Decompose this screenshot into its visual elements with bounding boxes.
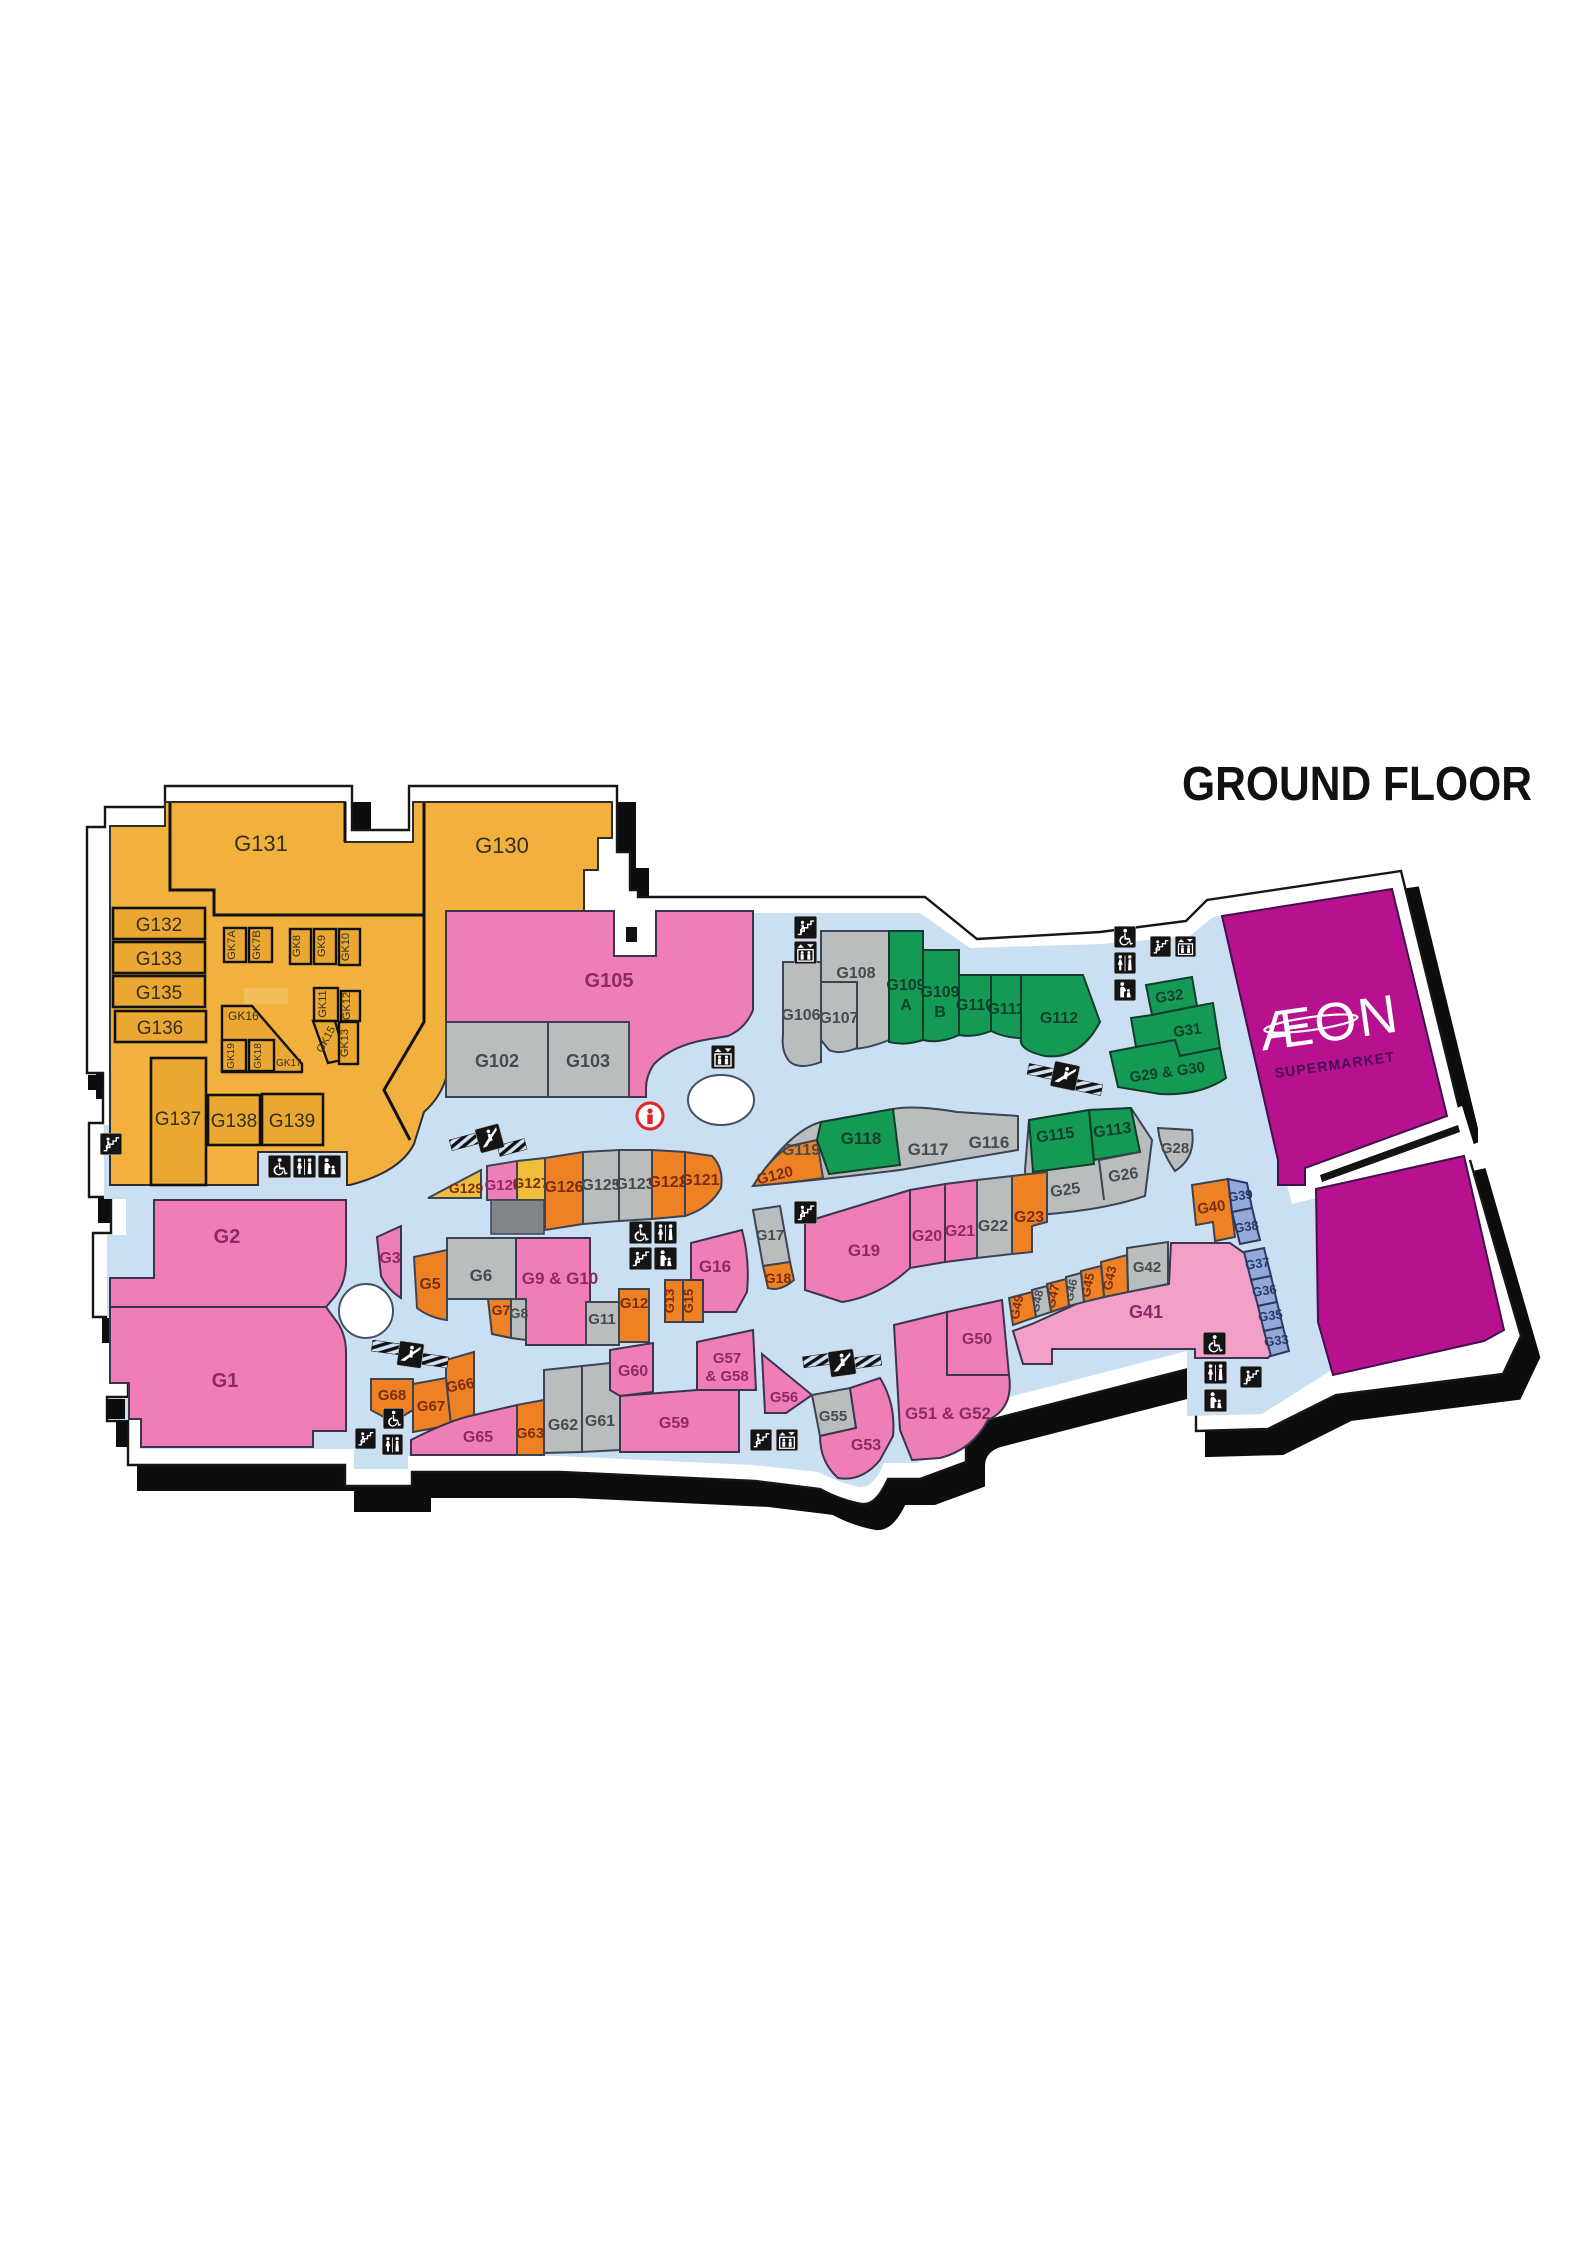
svg-text:G61: G61 bbox=[585, 1413, 615, 1430]
svg-text:G50: G50 bbox=[962, 1331, 992, 1348]
svg-text:G13: G13 bbox=[662, 1289, 677, 1314]
svg-text:G11: G11 bbox=[588, 1311, 616, 1328]
svg-text:G111: G111 bbox=[987, 1001, 1024, 1018]
svg-text:GK13: GK13 bbox=[339, 1029, 351, 1057]
svg-text:G41: G41 bbox=[1129, 1302, 1163, 1322]
svg-text:GROUND FLOOR: GROUND FLOOR bbox=[1182, 758, 1532, 811]
svg-text:G105: G105 bbox=[585, 970, 634, 992]
svg-text:G112: G112 bbox=[1040, 1010, 1078, 1027]
svg-text:G7: G7 bbox=[492, 1302, 511, 1318]
svg-text:& G58: & G58 bbox=[705, 1368, 748, 1385]
svg-text:G117: G117 bbox=[908, 1140, 949, 1159]
svg-text:G121: G121 bbox=[680, 1172, 719, 1189]
svg-text:G137: G137 bbox=[155, 1109, 201, 1130]
svg-text:G109: G109 bbox=[920, 984, 959, 1001]
svg-text:G65: G65 bbox=[463, 1429, 493, 1446]
svg-text:G62: G62 bbox=[548, 1417, 578, 1434]
svg-text:G23: G23 bbox=[1014, 1209, 1044, 1226]
svg-text:G53: G53 bbox=[851, 1437, 881, 1454]
svg-text:G59: G59 bbox=[659, 1415, 689, 1432]
svg-text:G60: G60 bbox=[618, 1363, 648, 1380]
svg-text:GK7B: GK7B bbox=[251, 930, 263, 959]
svg-text:G138: G138 bbox=[211, 1111, 257, 1132]
svg-text:G118: G118 bbox=[841, 1129, 882, 1148]
svg-text:GK9: GK9 bbox=[316, 935, 328, 957]
svg-text:G102: G102 bbox=[475, 1051, 519, 1071]
svg-text:G17: G17 bbox=[756, 1227, 784, 1244]
svg-text:G108: G108 bbox=[836, 965, 875, 982]
svg-text:G139: G139 bbox=[269, 1111, 315, 1132]
svg-text:G132: G132 bbox=[136, 915, 182, 936]
svg-text:G116: G116 bbox=[969, 1133, 1010, 1152]
svg-text:A: A bbox=[900, 997, 912, 1014]
svg-text:G19: G19 bbox=[848, 1241, 880, 1260]
svg-text:G28: G28 bbox=[1161, 1140, 1189, 1157]
svg-text:G21: G21 bbox=[945, 1223, 975, 1240]
svg-text:G126: G126 bbox=[544, 1179, 583, 1196]
svg-text:G107: G107 bbox=[819, 1010, 858, 1027]
svg-text:GK17: GK17 bbox=[276, 1058, 302, 1069]
svg-text:G67: G67 bbox=[417, 1398, 445, 1415]
svg-text:G57: G57 bbox=[713, 1350, 741, 1367]
svg-text:G133: G133 bbox=[136, 949, 182, 970]
svg-text:G2: G2 bbox=[214, 1226, 241, 1248]
svg-text:G42: G42 bbox=[1133, 1259, 1161, 1276]
svg-text:G8: G8 bbox=[510, 1305, 529, 1321]
svg-text:GK18: GK18 bbox=[253, 1043, 264, 1069]
svg-text:G106: G106 bbox=[781, 1007, 820, 1024]
svg-text:G20: G20 bbox=[912, 1228, 942, 1245]
svg-text:G56: G56 bbox=[770, 1389, 798, 1406]
svg-text:G131: G131 bbox=[234, 831, 288, 856]
svg-text:G68: G68 bbox=[378, 1387, 406, 1404]
svg-text:G55: G55 bbox=[819, 1408, 847, 1425]
svg-text:G22: G22 bbox=[978, 1218, 1008, 1235]
svg-text:GK7A: GK7A bbox=[226, 930, 238, 960]
svg-text:GK19: GK19 bbox=[226, 1043, 237, 1069]
svg-text:GK10: GK10 bbox=[340, 933, 352, 961]
svg-text:G1: G1 bbox=[212, 1370, 239, 1392]
svg-text:G3: G3 bbox=[379, 1250, 400, 1267]
svg-text:G15: G15 bbox=[681, 1289, 696, 1314]
svg-text:G51 & G52: G51 & G52 bbox=[905, 1404, 991, 1423]
svg-text:G16: G16 bbox=[699, 1257, 731, 1276]
svg-text:B: B bbox=[934, 1004, 946, 1021]
svg-text:G129: G129 bbox=[449, 1180, 483, 1196]
svg-text:G136: G136 bbox=[137, 1018, 183, 1039]
svg-text:G130: G130 bbox=[475, 833, 529, 858]
svg-text:GK16: GK16 bbox=[228, 1009, 259, 1023]
svg-text:G5: G5 bbox=[419, 1276, 440, 1293]
svg-text:G9 & G10: G9 & G10 bbox=[522, 1269, 599, 1288]
svg-text:G12: G12 bbox=[620, 1295, 648, 1312]
svg-text:G6: G6 bbox=[470, 1266, 493, 1285]
svg-text:GK11: GK11 bbox=[317, 990, 329, 1017]
svg-text:G63: G63 bbox=[516, 1425, 544, 1442]
svg-text:G135: G135 bbox=[136, 983, 182, 1004]
svg-text:G18: G18 bbox=[765, 1270, 792, 1286]
svg-text:GK8: GK8 bbox=[291, 935, 303, 957]
svg-text:G119: G119 bbox=[782, 1142, 820, 1159]
svg-text:G103: G103 bbox=[566, 1051, 610, 1071]
svg-text:GK12: GK12 bbox=[341, 992, 353, 1020]
